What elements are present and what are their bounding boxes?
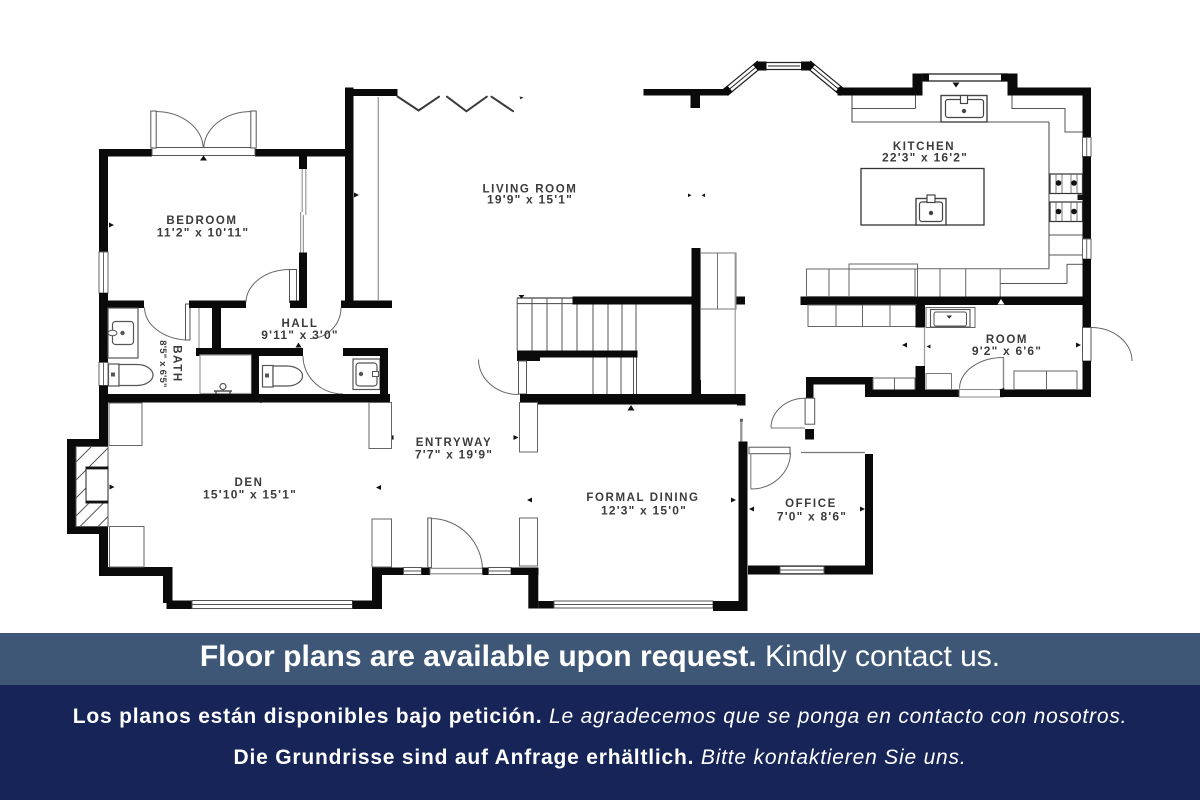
svg-text:11'2" x 10'11": 11'2" x 10'11": [157, 226, 250, 240]
svg-text:9'2" x 6'6": 9'2" x 6'6": [972, 344, 1042, 358]
svg-text:Die Grundrisse sind auf Anfrag: Die Grundrisse sind auf Anfrage erhältli…: [234, 746, 967, 769]
svg-text:FORMAL DINING: FORMAL DINING: [586, 492, 699, 504]
svg-text:8'5" x 6'5": 8'5" x 6'5": [157, 340, 168, 387]
svg-text:12'3" x 15'0": 12'3" x 15'0": [601, 504, 687, 518]
svg-text:OFFICE: OFFICE: [785, 498, 837, 510]
svg-text:9'11" x 3'0": 9'11" x 3'0": [261, 328, 339, 342]
svg-text:7'7" x 19'9": 7'7" x 19'9": [415, 448, 493, 462]
svg-text:15'10" x 15'1": 15'10" x 15'1": [203, 488, 297, 502]
svg-text:BATH: BATH: [171, 345, 183, 383]
svg-text:22'3" x 16'2": 22'3" x 16'2": [882, 151, 968, 165]
svg-text:7'0" x 8'6": 7'0" x 8'6": [777, 510, 847, 524]
svg-text:19'9" x 15'1": 19'9" x 15'1": [487, 193, 573, 207]
svg-text:Los planos están disponibles b: Los planos están disponibles bajo petici…: [73, 705, 1128, 728]
svg-text:Floor plans are available upon: Floor plans are available upon request. …: [200, 640, 1000, 673]
